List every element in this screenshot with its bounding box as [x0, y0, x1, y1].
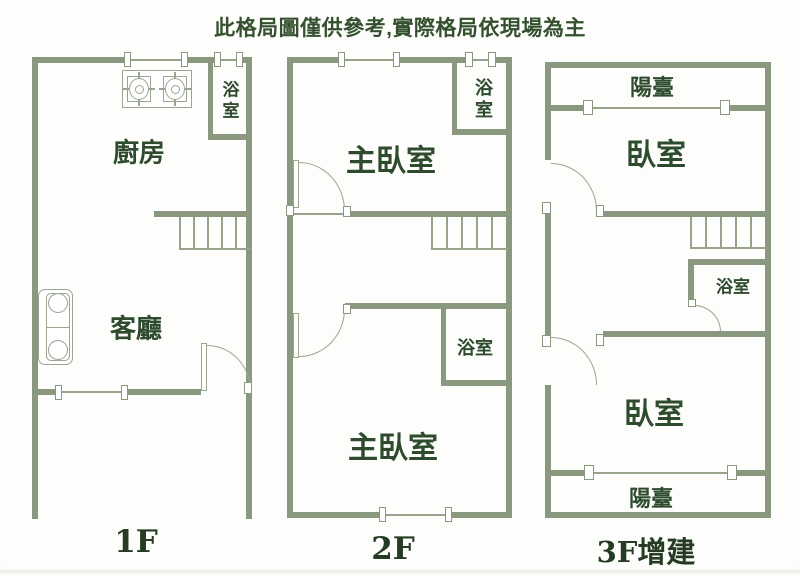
- window-icon: [584, 465, 594, 480]
- window-icon: [473, 59, 488, 61]
- wall: [32, 57, 124, 63]
- room-label-bathroom: 浴室: [457, 334, 493, 360]
- window-icon: [593, 107, 720, 109]
- wall: [545, 62, 551, 160]
- wall: [345, 303, 512, 309]
- wall: [603, 211, 771, 217]
- floor-label-2f: 2F: [371, 531, 415, 567]
- window-icon: [131, 59, 181, 61]
- door-threshold: [293, 213, 343, 215]
- wall: [128, 389, 201, 395]
- stairs-icon: [431, 248, 508, 250]
- door-jamb-icon: [244, 382, 252, 394]
- wall: [545, 470, 584, 476]
- stairs-icon: [235, 217, 237, 248]
- room-label-balcony: 陽臺: [630, 70, 674, 102]
- wall: [154, 211, 252, 217]
- door-swing-icon: [551, 337, 597, 385]
- room-label-master-bedroom: 主臥室: [348, 423, 438, 467]
- wall: [452, 512, 512, 518]
- window-icon: [181, 52, 188, 67]
- wall: [603, 331, 771, 337]
- door-jamb-icon: [542, 335, 551, 347]
- window-icon: [124, 52, 131, 67]
- stairs-icon: [750, 217, 752, 247]
- wall: [243, 57, 252, 63]
- window-icon: [488, 52, 496, 67]
- stairs-icon: [690, 247, 767, 249]
- stairs-icon: [476, 217, 478, 248]
- wall: [765, 62, 771, 518]
- room-label-living-room: 客廳: [110, 309, 162, 346]
- window-icon: [338, 52, 345, 67]
- stairs-icon: [491, 217, 493, 248]
- door-swing-icon: [299, 309, 345, 357]
- door-swing-icon: [299, 162, 345, 211]
- window-icon: [445, 507, 452, 522]
- window-icon: [214, 52, 221, 67]
- stairs-icon: [179, 217, 181, 249]
- wall: [208, 134, 252, 140]
- wall: [287, 57, 338, 63]
- window-icon: [121, 385, 128, 400]
- floor-plan-canvas: 此格局圖僅供參考,實際格局依現場為主: [0, 0, 800, 576]
- door-jamb-icon: [542, 202, 551, 214]
- wall: [688, 259, 771, 265]
- stairs-icon: [193, 217, 195, 248]
- door-jamb-icon: [596, 334, 604, 346]
- wall: [287, 57, 293, 518]
- window-icon: [720, 100, 730, 115]
- room-label-bathroom: 浴室: [222, 80, 240, 121]
- window-icon: [393, 52, 400, 67]
- door-swing-icon: [551, 163, 597, 211]
- scan-artifact: [0, 570, 800, 573]
- wall: [545, 385, 551, 518]
- disclaimer-title: 此格局圖僅供參考,實際格局依現場為主: [214, 12, 586, 42]
- stairs-icon: [461, 217, 463, 248]
- door-jamb-icon: [688, 299, 696, 307]
- window-icon: [727, 465, 737, 480]
- wall: [32, 57, 38, 519]
- wall: [545, 105, 583, 111]
- door-swing-icon: [694, 305, 721, 332]
- window-icon: [345, 59, 393, 61]
- stairs-icon: [735, 217, 737, 247]
- room-label-bathroom: 浴室: [716, 273, 750, 298]
- wall: [441, 309, 446, 386]
- window-icon: [379, 507, 386, 522]
- room-label-bathroom: 浴室: [474, 78, 493, 122]
- window-icon: [594, 472, 727, 474]
- wall: [345, 211, 512, 217]
- stairs-icon: [720, 217, 722, 247]
- sofa-icon: [38, 289, 73, 365]
- wall: [737, 470, 771, 476]
- wall: [452, 57, 457, 135]
- wall: [287, 512, 379, 518]
- wall: [246, 57, 252, 519]
- room-label-master-bedroom: 主臥室: [346, 136, 436, 180]
- wall: [32, 389, 55, 395]
- window-icon: [236, 52, 243, 67]
- window-icon: [55, 385, 62, 400]
- stairs-icon: [690, 217, 692, 247]
- stairs-icon: [705, 217, 707, 247]
- wall: [545, 62, 771, 68]
- window-icon: [221, 59, 236, 61]
- stairs-icon: [207, 217, 209, 248]
- room-label-bedroom: 臥室: [624, 389, 684, 433]
- stairs-icon: [446, 217, 448, 248]
- wall: [545, 205, 551, 335]
- wall: [208, 57, 213, 140]
- floor-label-1f: 1F: [114, 524, 158, 560]
- window-icon: [62, 391, 121, 393]
- stairs-icon: [221, 217, 223, 248]
- wall: [496, 57, 512, 63]
- window-icon: [465, 52, 473, 67]
- window-icon: [583, 100, 593, 115]
- stairs-icon: [179, 248, 251, 250]
- floor-label-3f: 3F增建: [597, 529, 696, 571]
- wall: [730, 105, 771, 111]
- room-label-kitchen: 廚房: [113, 133, 165, 170]
- wall: [506, 57, 512, 518]
- room-label-balcony: 陽臺: [629, 481, 673, 513]
- window-icon: [386, 514, 445, 516]
- door-jamb-icon: [343, 206, 351, 217]
- stairs-icon: [431, 217, 433, 248]
- wall: [441, 380, 512, 386]
- door-jamb-icon: [343, 304, 351, 314]
- wall: [452, 129, 512, 135]
- door-jamb-icon: [596, 205, 604, 217]
- room-label-bedroom: 臥室: [626, 130, 686, 174]
- stove-icon: [122, 70, 192, 108]
- door-jamb-icon: [286, 205, 294, 216]
